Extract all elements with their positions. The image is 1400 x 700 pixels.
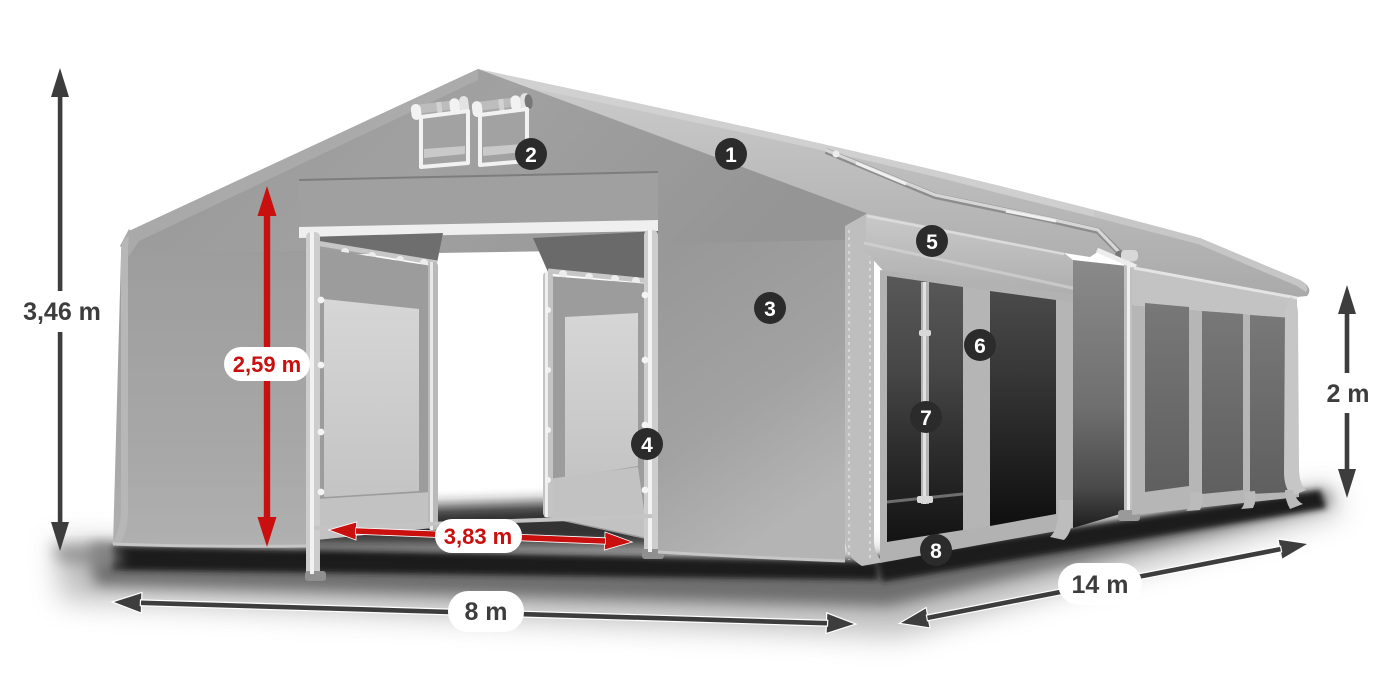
svg-text:5: 5: [926, 231, 938, 254]
svg-text:7: 7: [920, 407, 932, 430]
svg-text:6: 6: [974, 335, 986, 358]
svg-text:8: 8: [930, 540, 942, 563]
svg-text:2,59 m: 2,59 m: [233, 352, 302, 377]
svg-text:8 m: 8 m: [464, 598, 507, 626]
svg-text:1: 1: [725, 144, 737, 167]
svg-text:14 m: 14 m: [1072, 571, 1129, 599]
svg-text:3,46 m: 3,46 m: [23, 298, 101, 326]
svg-text:3,83 m: 3,83 m: [444, 524, 513, 549]
svg-text:4: 4: [641, 434, 653, 457]
svg-text:2: 2: [525, 144, 537, 167]
svg-text:2 m: 2 m: [1326, 380, 1369, 408]
svg-text:3: 3: [764, 298, 776, 321]
